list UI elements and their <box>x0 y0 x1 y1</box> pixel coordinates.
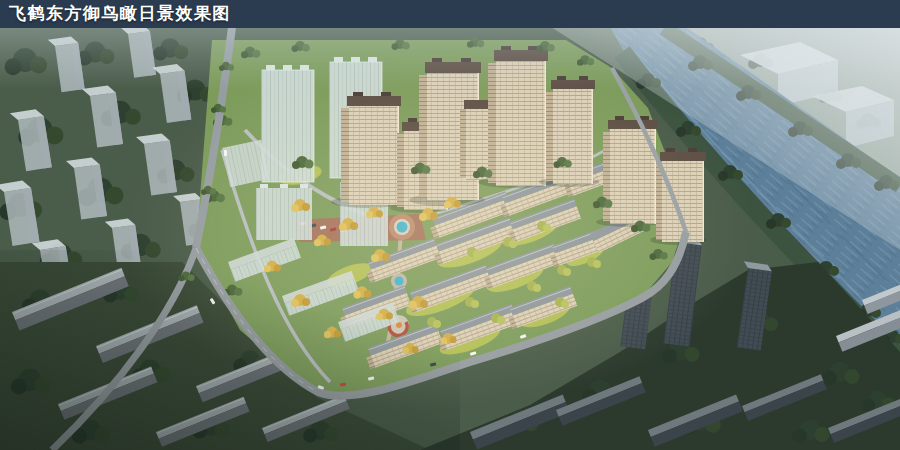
sunlight-glow <box>120 50 760 410</box>
aerial-rendering <box>0 0 900 450</box>
title-bar: 飞鹤东方御鸟瞰日景效果图 <box>0 0 900 28</box>
page-title: 飞鹤东方御鸟瞰日景效果图 <box>0 0 231 28</box>
rendering-page: 飞鹤东方御鸟瞰日景效果图 <box>0 0 900 450</box>
